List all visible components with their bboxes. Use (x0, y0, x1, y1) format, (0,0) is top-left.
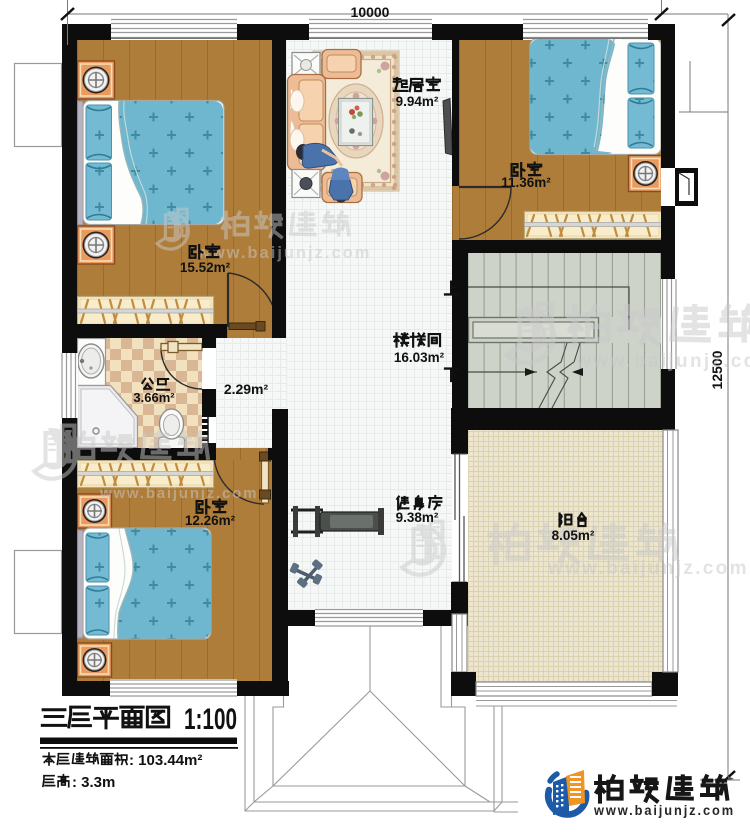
svg-text:3.66m²: 3.66m² (133, 390, 175, 405)
svg-text:8.05m²: 8.05m² (552, 528, 595, 543)
svg-text:15.52m²: 15.52m² (180, 260, 231, 275)
svg-text:9.94m²: 9.94m² (396, 94, 439, 109)
svg-text:16.03m²: 16.03m² (394, 350, 445, 365)
svg-text:www.baijunjz.com: www.baijunjz.com (99, 485, 258, 502)
svg-text:12.26m²: 12.26m² (185, 513, 236, 528)
svg-text:www.baijunjz.com: www.baijunjz.com (547, 558, 749, 579)
svg-text:: 103.44m²: : 103.44m² (129, 752, 202, 769)
svg-text:11.36m²: 11.36m² (501, 175, 551, 190)
svg-text:10000: 10000 (351, 4, 390, 20)
svg-text:9.38m²: 9.38m² (396, 510, 439, 525)
svg-text:2.29m²: 2.29m² (224, 381, 269, 397)
svg-text:www.baijunjz.com: www.baijunjz.com (575, 351, 750, 372)
svg-text:1:100: 1:100 (184, 703, 237, 736)
svg-text:www.baijunjz.com: www.baijunjz.com (593, 803, 735, 818)
svg-text:: 3.3m: : 3.3m (72, 774, 115, 791)
